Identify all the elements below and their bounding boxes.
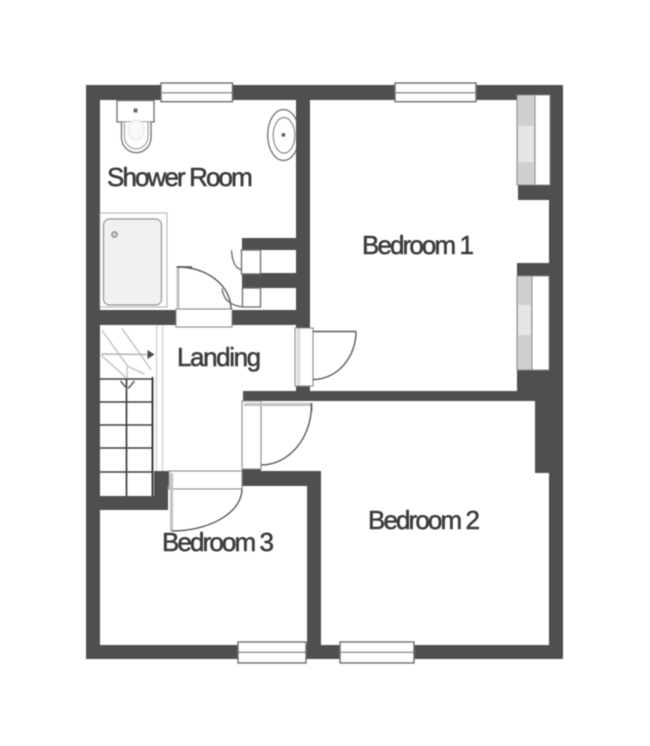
svg-text:Bedroom 3: Bedroom 3: [162, 527, 274, 557]
svg-text:Shower Room: Shower Room: [107, 162, 251, 192]
svg-text:Bedroom 2: Bedroom 2: [368, 505, 480, 535]
svg-text:Bedroom 1: Bedroom 1: [362, 230, 474, 260]
svg-text:Landing: Landing: [177, 342, 260, 372]
